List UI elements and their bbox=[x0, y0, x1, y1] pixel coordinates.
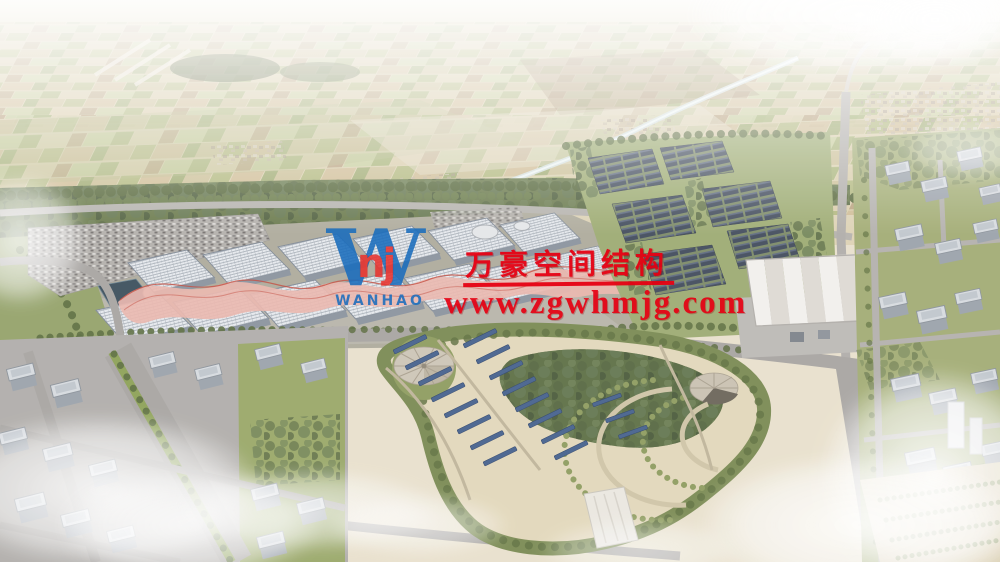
central-park bbox=[384, 328, 764, 548]
aerial-rendering bbox=[0, 0, 1000, 562]
atmospheric-haze bbox=[0, 0, 1000, 235]
white-tower bbox=[948, 402, 964, 448]
city-southwest bbox=[0, 326, 348, 562]
aerial-rendering-screenshot: W nj WANHAO 万豪空间结构 www.zgwhmjg.com bbox=[0, 0, 1000, 562]
